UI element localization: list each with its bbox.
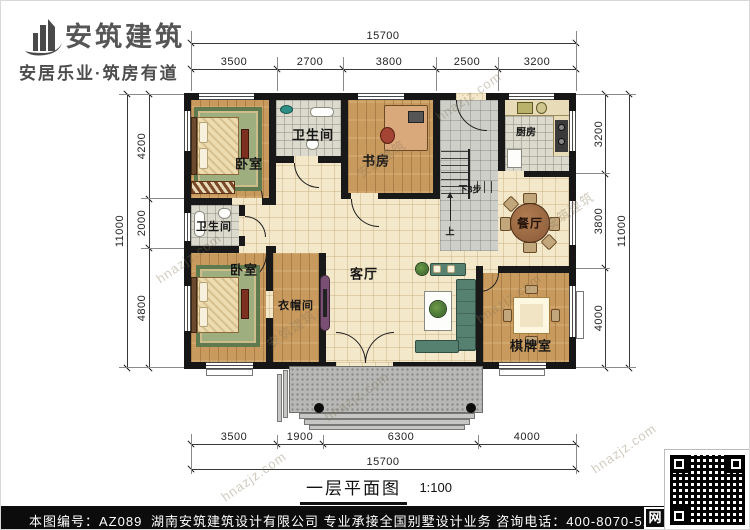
room-label-bedroom-bottom: 卧室 [230, 260, 258, 279]
porch-step [283, 370, 288, 418]
wall-segment [266, 246, 276, 253]
chess-stool [551, 309, 560, 322]
dining-chair [523, 242, 537, 253]
stair-down-label: 下3步 [458, 183, 481, 196]
drawing-scale: 1:100 [419, 480, 452, 495]
dim-top-seg: 2500 [454, 56, 480, 68]
window [184, 286, 191, 331]
watermark: hnazjz.com [589, 421, 660, 477]
fridge [507, 149, 522, 168]
wall-segment [239, 205, 245, 216]
room-label-kitchen: 厨房 [516, 124, 536, 139]
dim-top-seg: 3500 [221, 56, 247, 68]
company-info: 湖南安筑建筑设计有限公司 专业承接全国别墅设计业务 咨询电话：400-8070-… [151, 511, 658, 530]
dim-right-seg-line [605, 94, 606, 368]
pillow [199, 307, 208, 327]
witness-line [141, 248, 184, 249]
witness-line [119, 367, 184, 368]
witness-line [478, 435, 479, 449]
burner [558, 138, 565, 145]
qr-finder [670, 455, 688, 473]
window [184, 111, 191, 151]
window-sill [206, 369, 253, 376]
wall-segment [524, 171, 569, 177]
window [184, 213, 191, 241]
footer-bar: 本图编号：AZ089 湖南安筑建筑设计有限公司 专业承接全国别墅设计业务 咨询电… [1, 506, 750, 530]
wall-segment [378, 193, 433, 199]
witness-line [343, 57, 344, 91]
dim-right-total: 11000 [616, 215, 628, 247]
chess-stool [503, 309, 512, 322]
striped-mat [191, 181, 235, 194]
witness-line [576, 173, 610, 174]
dim-bottom-seg: 3500 [221, 431, 247, 443]
witness-line [576, 268, 610, 269]
room-label-living: 客厅 [350, 264, 378, 283]
witness-line [191, 434, 192, 474]
dim-left-seg: 4200 [136, 133, 148, 159]
dim-left-total: 11000 [114, 215, 126, 247]
window-sill [499, 369, 545, 376]
sink [536, 102, 547, 114]
wall-segment [341, 193, 351, 199]
room-label-bathroom-top: 卫生间 [292, 125, 334, 144]
brand-tagline: 安居乐业·筑房有道 [19, 59, 179, 84]
wall-segment [498, 100, 505, 171]
dim-top-seg: 2700 [297, 56, 323, 68]
dim-left-total-line [127, 94, 128, 368]
dim-right-seg: 4000 [593, 305, 605, 331]
sofa-bench [415, 340, 459, 353]
tv [323, 289, 327, 317]
wall-segment [269, 100, 276, 205]
pillow [199, 122, 208, 143]
witness-line [191, 31, 192, 91]
room-label-dining: 餐厅 [517, 215, 543, 232]
dim-bottom-seg: 4000 [514, 431, 540, 443]
qr-finder [670, 507, 688, 525]
witness-line [576, 434, 577, 474]
witness-line [436, 57, 437, 91]
floorplan: 下3步 上 [184, 93, 576, 369]
dim-bottom-seg: 6300 [388, 431, 414, 443]
dim-left-seg-line [149, 94, 150, 368]
floorplan-sheet: 安筑建筑 安居乐业·筑房有道 15700 3500 2700 3800 2500… [0, 0, 750, 530]
witness-line [576, 31, 577, 91]
drawing-title-text: 一层平面图 [300, 474, 407, 505]
wall-segment [266, 253, 273, 291]
drawing-number: 本图编号：AZ089 [29, 511, 142, 530]
witness-line [323, 435, 324, 449]
wall-segment [191, 198, 232, 205]
bathtub [310, 107, 334, 117]
brand-name: 安筑建筑 [65, 15, 185, 54]
plant [430, 301, 446, 317]
web-badge: 网 [644, 507, 666, 529]
witness-line [277, 435, 278, 449]
witness-line [119, 94, 184, 95]
porch-step [277, 374, 282, 422]
window [569, 111, 576, 151]
brand-logo-icon [21, 13, 65, 59]
drawing-title: 一层平面图 1:100 [1, 474, 750, 505]
qr-finder [727, 455, 745, 473]
wall-segment [476, 266, 483, 273]
pillow [199, 282, 208, 302]
wall-segment [276, 156, 294, 163]
plant [416, 263, 428, 275]
stair-up-label: 上 [445, 225, 454, 238]
window [358, 93, 404, 100]
dim-bottom-seg: 1900 [287, 431, 313, 443]
dim-right-total-line [629, 94, 630, 368]
witness-line [576, 94, 636, 95]
sink [517, 102, 533, 114]
monitor [408, 111, 424, 123]
porch-step [309, 425, 465, 430]
window [199, 93, 254, 100]
wall-segment [262, 198, 276, 205]
window [206, 362, 253, 369]
dim-top-total-line [191, 43, 576, 44]
dim-top-seg: 3800 [376, 56, 402, 68]
wall-segment [239, 236, 245, 246]
dim-left-seg: 2000 [136, 210, 148, 236]
window [509, 93, 554, 100]
burner [558, 124, 565, 131]
pillow [447, 265, 455, 273]
dim-top-seg-line [191, 69, 576, 70]
chess-table [513, 297, 550, 334]
stair-up-arrow-icon [450, 195, 451, 221]
sofa-main [456, 279, 476, 351]
dim-right-seg: 3200 [593, 121, 605, 147]
pillow [433, 265, 441, 273]
window [569, 286, 576, 337]
pillow [199, 148, 208, 169]
dim-bottom-total: 15700 [366, 456, 399, 468]
wall-segment [341, 100, 348, 199]
porch-column [466, 403, 476, 413]
witness-line [576, 367, 636, 368]
room-label-chess: 棋牌室 [510, 336, 552, 355]
wall-segment [318, 156, 341, 163]
witness-line [141, 198, 184, 199]
room-label-bedroom-top: 卧室 [235, 154, 263, 173]
qr-code [664, 449, 750, 530]
basin [280, 105, 293, 114]
dim-top-seg: 3200 [524, 56, 550, 68]
dim-top-total: 15700 [366, 30, 399, 42]
window [499, 362, 546, 369]
dim-bottom-seg-line [191, 444, 576, 445]
window-sill [576, 291, 584, 339]
dim-right-seg: 3800 [593, 208, 605, 234]
witness-line [277, 57, 278, 91]
bedside-bench [241, 289, 249, 319]
dim-left-seg: 4800 [136, 295, 148, 321]
